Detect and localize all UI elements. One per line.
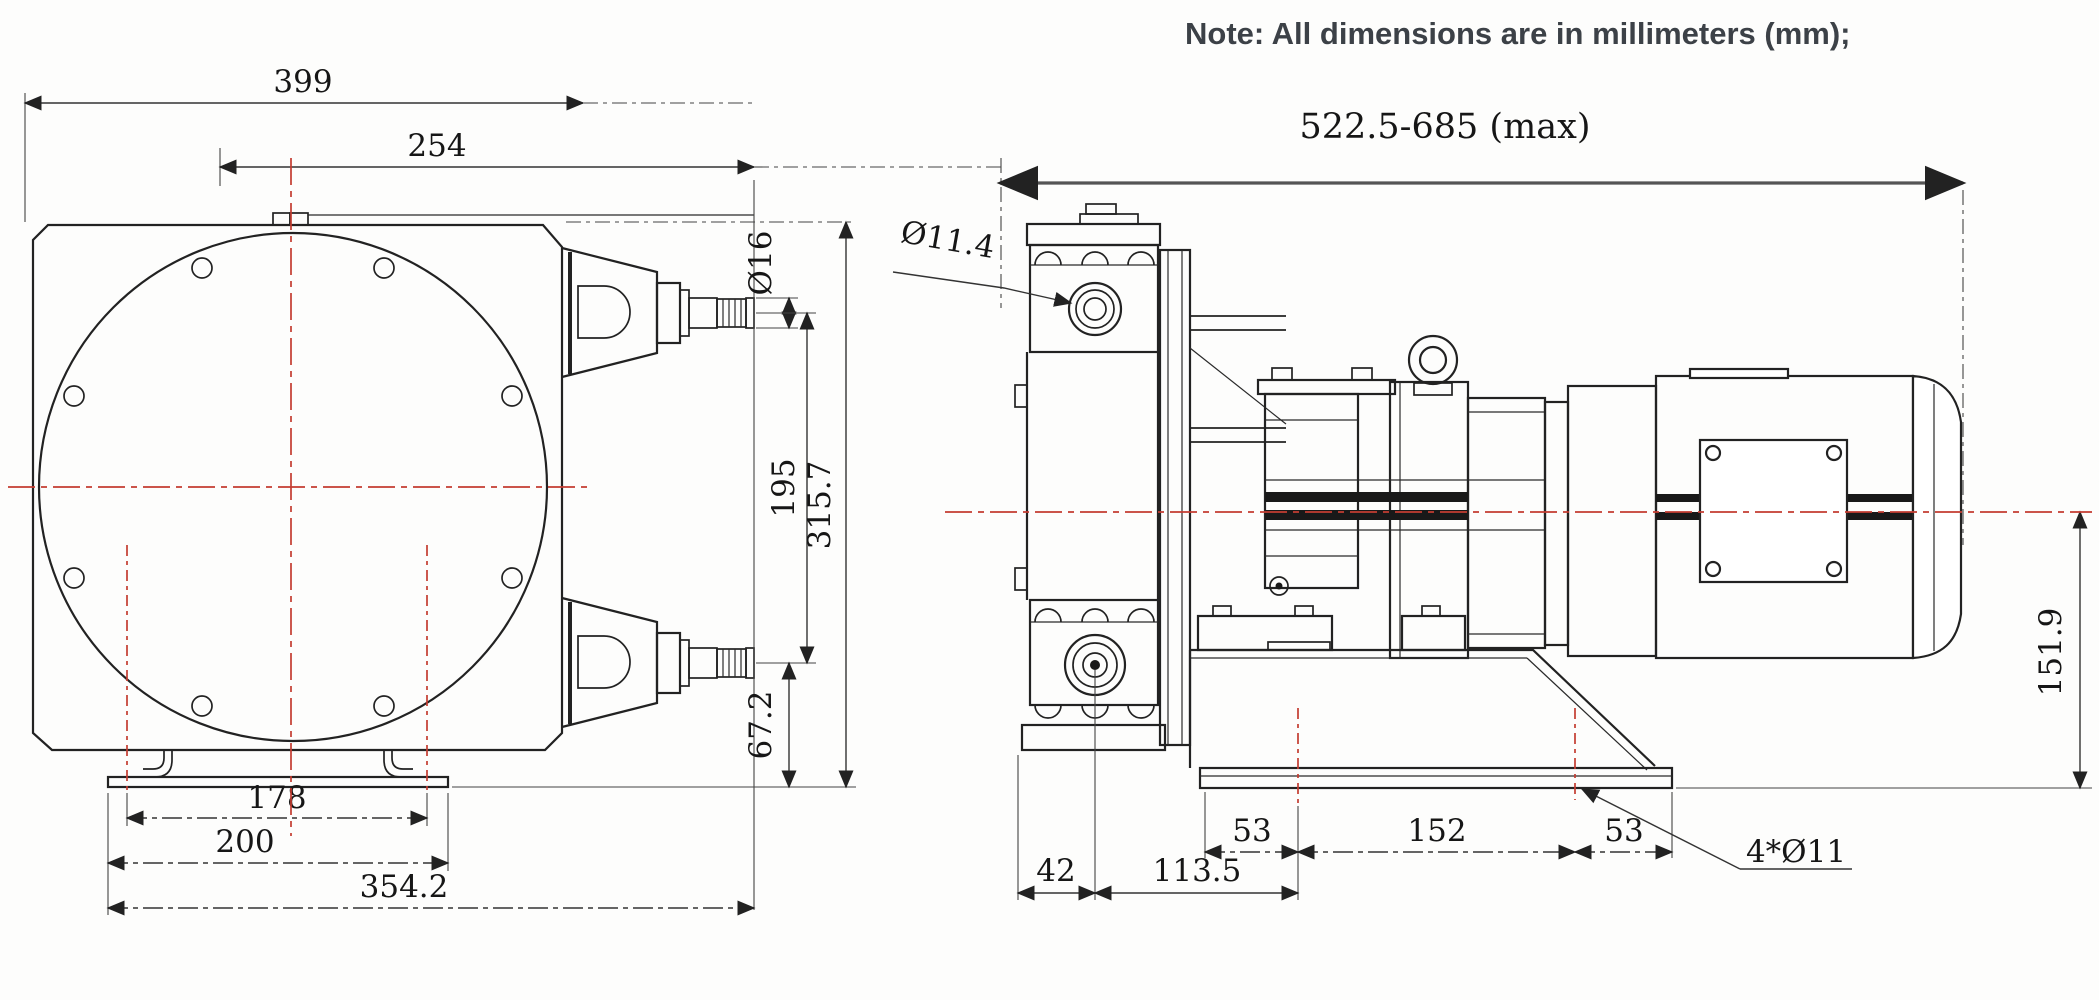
dim-foot-plate-width-label: 200 — [215, 824, 274, 860]
gearbox — [1198, 336, 1545, 658]
dim-port-offset-width-label: 254 — [407, 128, 466, 164]
dim-port-to-bolt-hole-label: 113.5 — [1153, 853, 1242, 889]
suction-nozzle-front — [562, 598, 754, 727]
units-note: Note: All dimensions are in millimeters … — [1185, 16, 2085, 52]
dim-bolt-edge-left-label: 53 — [1232, 813, 1271, 849]
motor-end-cap — [1913, 376, 1961, 658]
dim-port-bore-label: Ø11.4 — [898, 214, 997, 266]
pump-housing-front — [33, 213, 754, 750]
pump-flange-plate — [1160, 250, 1190, 745]
front-view: 399 254 Ø16 195 — [8, 64, 1001, 915]
dim-port-offset-label: 42 — [1036, 853, 1075, 889]
dim-nozzle-to-base-label: 67.2 — [743, 690, 779, 759]
pump-head-side — [1015, 204, 1190, 750]
dim-overall-length-label: 522.5-685 (max) — [1299, 107, 1590, 147]
dim-overall-height-label: 315.7 — [802, 461, 838, 550]
side-view: 522.5-685 (max) Ø11.4 42 113.5 53 — [893, 107, 2092, 900]
front-view-centerlines — [8, 158, 592, 836]
dim-shaft-center-height-label: 151.9 — [2033, 608, 2069, 697]
lifting-eye-bolt — [1409, 336, 1457, 395]
pedestal-base — [1190, 642, 1672, 788]
dim-foot-slot-spacing-label: 178 — [247, 780, 306, 816]
dim-mounting-holes-label: 4*Ø11 — [1746, 834, 1846, 870]
technical-drawing-page: 399 254 Ø16 195 — [0, 0, 2099, 1000]
electric-motor — [1545, 369, 1961, 658]
dim-nozzle-spacing-label: 195 — [766, 458, 802, 517]
discharge-nozzle-front — [562, 248, 754, 377]
dim-bolt-hole-pitch-label: 152 — [1407, 813, 1466, 849]
dim-base-overall-width-label: 354.2 — [360, 869, 449, 905]
dim-nozzle-diameter-label: Ø16 — [743, 231, 779, 296]
dim-overall-width-label: 399 — [273, 64, 332, 100]
dim-bolt-edge-right-label: 53 — [1604, 813, 1643, 849]
motor-terminal-plate — [1700, 440, 1847, 582]
pump-dimension-drawing: 399 254 Ø16 195 — [0, 0, 2099, 1000]
